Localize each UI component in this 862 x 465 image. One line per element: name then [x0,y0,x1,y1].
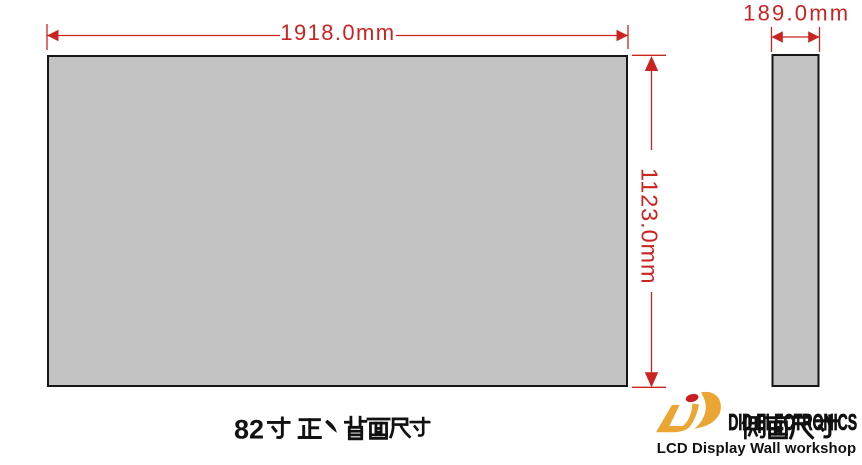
svg-text:1123.0mm: 1123.0mm [637,168,663,284]
svg-text:1918.0mm: 1918.0mm [280,20,395,45]
svg-text:LCD Display Wall workshop: LCD Display Wall workshop [657,441,856,457]
svg-text:82: 82 [234,415,264,445]
svg-text:DID ELECTRONICS: DID ELECTRONICS [728,411,857,436]
svg-text:189.0mm: 189.0mm [743,1,850,26]
